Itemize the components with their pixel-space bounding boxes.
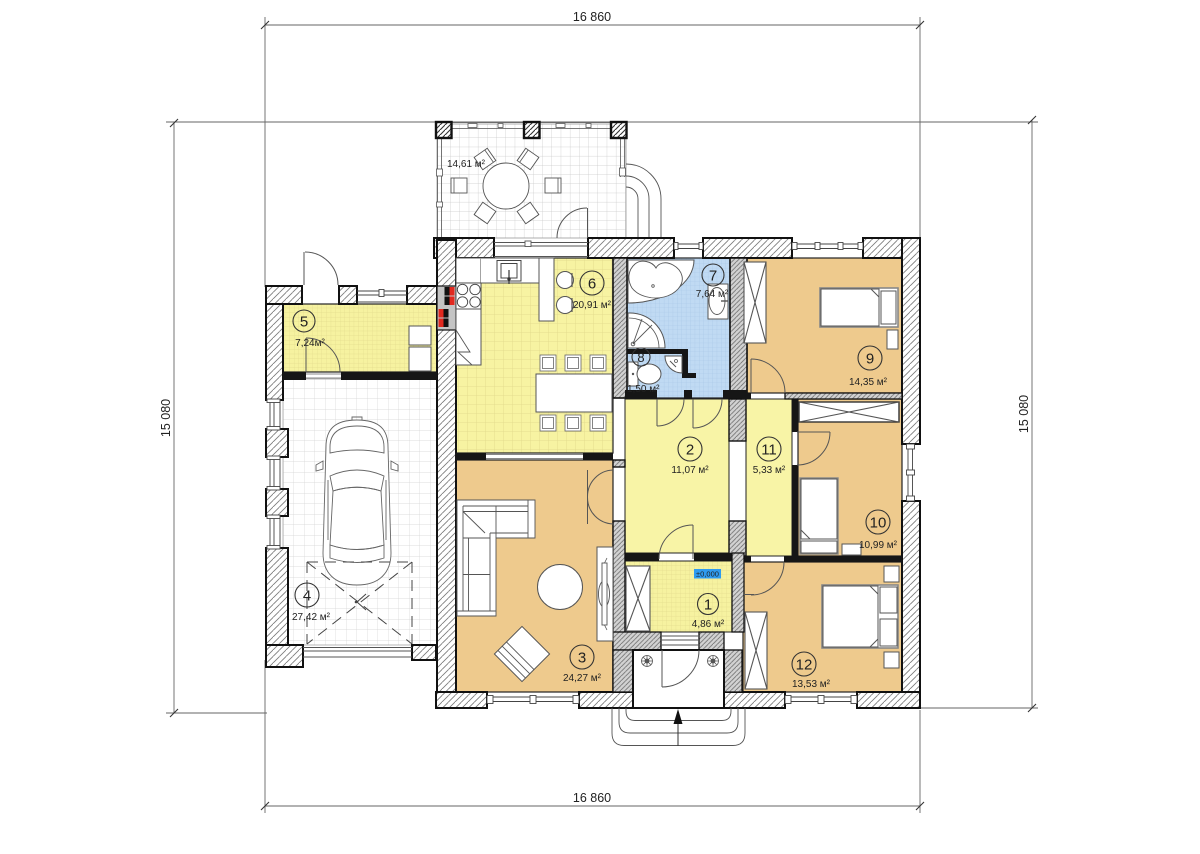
svg-text:20,91 м²: 20,91 м² [573,300,612,311]
svg-text:10,99 м²: 10,99 м² [859,540,898,551]
svg-text:16 860: 16 860 [573,791,611,805]
svg-text:24,27 м²: 24,27 м² [563,673,602,684]
svg-text:2: 2 [686,442,694,459]
svg-text:27,42 м²: 27,42 м² [292,612,331,623]
svg-text:7: 7 [709,268,717,285]
svg-text:7,24м²: 7,24м² [295,338,325,349]
svg-text:8: 8 [637,350,644,365]
svg-text:15 080: 15 080 [159,399,173,437]
svg-text:6: 6 [588,276,596,293]
svg-text:14,35 м²: 14,35 м² [849,377,888,388]
svg-text:13,53 м²: 13,53 м² [792,679,831,690]
svg-text:1: 1 [704,597,712,614]
svg-text:16 860: 16 860 [573,10,611,24]
svg-text:3: 3 [578,650,586,667]
svg-text:9: 9 [866,351,874,368]
svg-text:12: 12 [796,657,813,674]
svg-text:11,07 м²: 11,07 м² [671,465,709,476]
svg-text:5: 5 [300,314,308,331]
svg-text:7,64 м²: 7,64 м² [696,289,729,300]
svg-text:14,61 м²: 14,61 м² [447,159,486,170]
svg-text:10: 10 [870,515,887,532]
svg-text:1,50 м²: 1,50 м² [627,384,660,395]
svg-text:4: 4 [303,588,311,605]
svg-text:5,33 м²: 5,33 м² [753,465,786,476]
svg-text:4,86 м²: 4,86 м² [692,619,725,630]
svg-text:15 080: 15 080 [1017,395,1031,433]
svg-text:±0,000: ±0,000 [696,570,719,579]
svg-text:11: 11 [761,442,777,459]
